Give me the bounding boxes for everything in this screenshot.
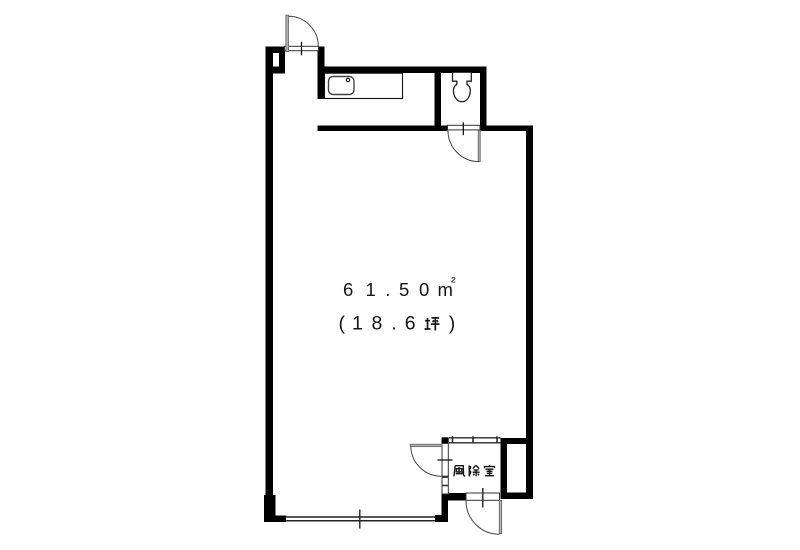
svg-text:²: ² xyxy=(451,274,456,290)
